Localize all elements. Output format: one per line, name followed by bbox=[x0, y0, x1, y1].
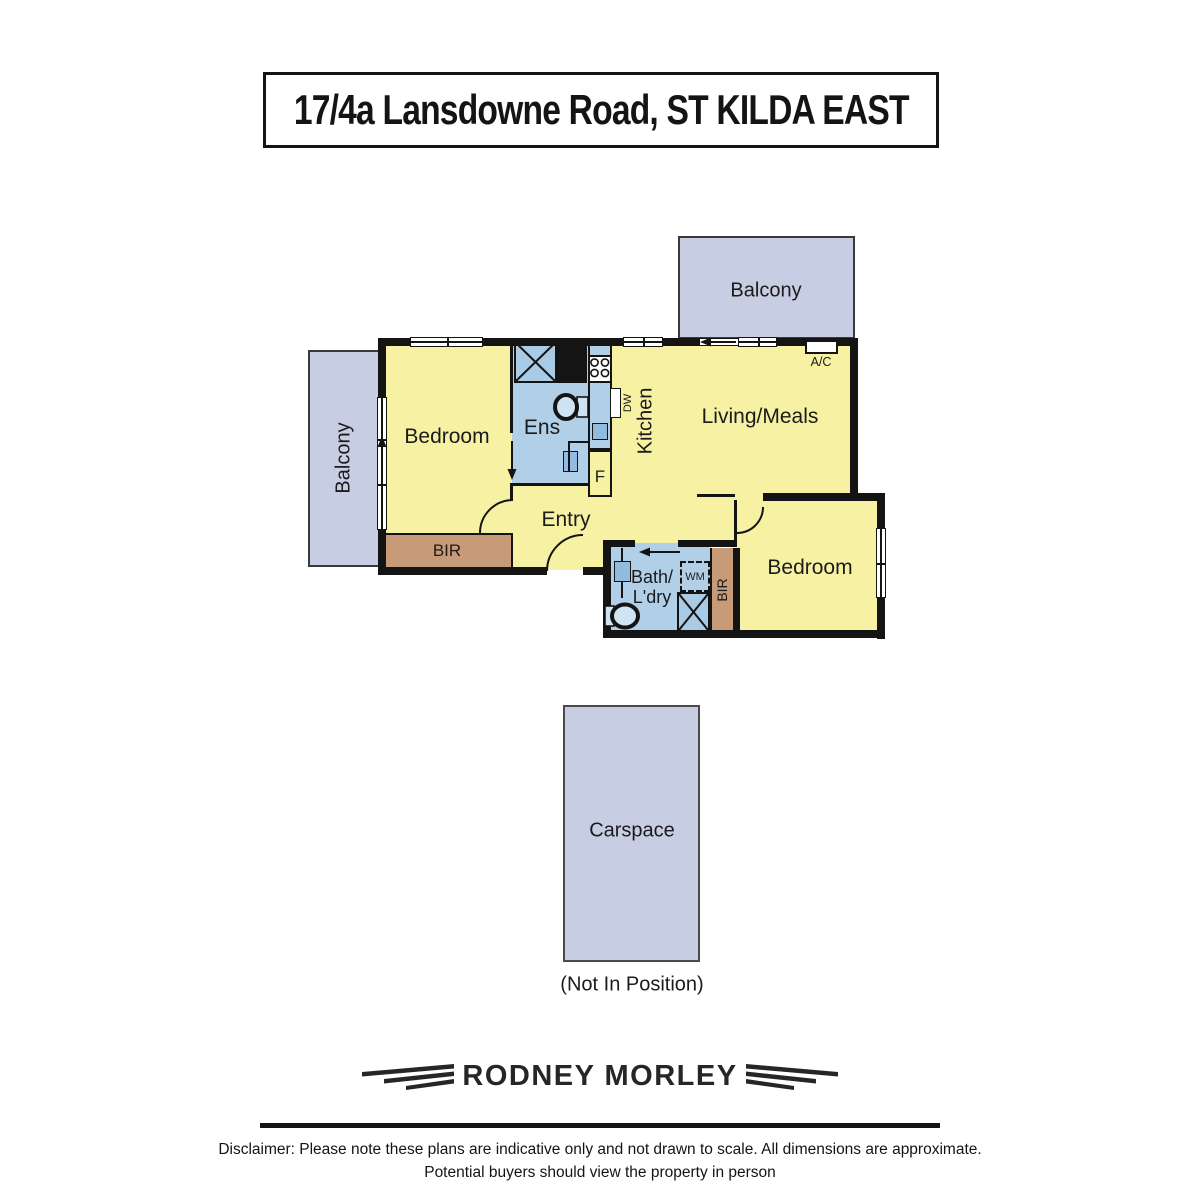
ensuite-label: Ens bbox=[524, 416, 560, 440]
aircon-unit bbox=[805, 340, 838, 354]
window bbox=[623, 337, 663, 347]
wall-segment bbox=[763, 493, 885, 501]
wall-segment bbox=[734, 500, 737, 542]
bir-main-label: BIR bbox=[433, 541, 461, 561]
divider-bar bbox=[260, 1123, 940, 1128]
carspace-note: (Not In Position) bbox=[560, 974, 703, 997]
wall-segment bbox=[733, 548, 740, 638]
shower-icon bbox=[514, 341, 557, 383]
floor-plan-page: 17/4a Lansdowne Road, ST KILDA EAST bbox=[0, 0, 1200, 1200]
stove-icon bbox=[588, 355, 612, 383]
living-meals-label: Living/Meals bbox=[702, 405, 819, 429]
room-area-corridor bbox=[608, 497, 737, 545]
bedroom-second-label: Bedroom bbox=[767, 556, 852, 580]
fridge-label: F bbox=[595, 467, 605, 487]
sink-icon bbox=[592, 423, 608, 440]
bir-second-label: BIR bbox=[714, 578, 730, 601]
window-divider bbox=[876, 563, 886, 565]
carspace-label: Carspace bbox=[589, 820, 675, 843]
balcony-left-label: Balcony bbox=[333, 422, 356, 493]
wall-segment bbox=[603, 540, 611, 638]
dishwasher-icon bbox=[610, 388, 621, 418]
plan-symbols bbox=[0, 0, 1200, 1200]
window bbox=[410, 337, 483, 347]
logo-right-wing-icon bbox=[746, 1063, 838, 1090]
vanity-icon bbox=[563, 451, 578, 472]
aircon-label: A/C bbox=[811, 355, 832, 369]
window bbox=[876, 528, 886, 598]
shower-icon bbox=[677, 592, 710, 632]
wall-segment bbox=[568, 441, 570, 472]
window-divider bbox=[643, 337, 645, 347]
wall-segment bbox=[603, 630, 885, 638]
bath-label-line1: Bath/ bbox=[631, 568, 673, 588]
window-pane-line bbox=[381, 398, 383, 529]
wall-duct-block bbox=[557, 341, 587, 383]
bedroom-main-label: Bedroom bbox=[404, 425, 489, 449]
window bbox=[738, 337, 777, 347]
entry-label: Entry bbox=[541, 508, 590, 532]
wall-segment bbox=[697, 494, 735, 497]
logo-left-wing-icon bbox=[362, 1063, 454, 1090]
wall-segment bbox=[510, 483, 590, 486]
wall-segment bbox=[378, 567, 547, 575]
window-divider bbox=[447, 337, 449, 347]
window-divider bbox=[377, 439, 387, 441]
sliding-door-track bbox=[700, 338, 738, 346]
floor-plan: Balcony Balcony Bedroom Ens Kitchen DW F… bbox=[0, 0, 1200, 1200]
dishwasher-label: DW bbox=[622, 394, 634, 412]
window-divider bbox=[758, 337, 760, 347]
agency-name: RODNEY MORLEY bbox=[462, 1060, 737, 1093]
wall-segment bbox=[603, 540, 635, 547]
vanity-icon bbox=[614, 561, 631, 582]
window-divider bbox=[377, 484, 387, 486]
window bbox=[377, 397, 387, 530]
disclaimer-line1: Disclaimer: Please note these plans are … bbox=[218, 1141, 981, 1159]
balcony-top-label: Balcony bbox=[730, 280, 801, 303]
bath-label-line2: L'dry bbox=[631, 588, 673, 608]
wall-segment bbox=[621, 548, 623, 561]
washing-machine-label: WM bbox=[685, 571, 705, 583]
wall-segment bbox=[583, 567, 611, 575]
wall-segment bbox=[621, 582, 623, 598]
wall-segment bbox=[568, 441, 588, 443]
bath-laundry-label: Bath/ L'dry bbox=[631, 568, 673, 608]
disclaimer-line2: Potential buyers should view the propert… bbox=[424, 1164, 776, 1182]
wall-segment bbox=[510, 341, 513, 433]
agency-logo: RODNEY MORLEY bbox=[0, 1060, 1200, 1093]
wall-segment bbox=[850, 338, 858, 500]
wall-segment bbox=[678, 540, 737, 547]
kitchen-label: Kitchen bbox=[635, 388, 658, 455]
